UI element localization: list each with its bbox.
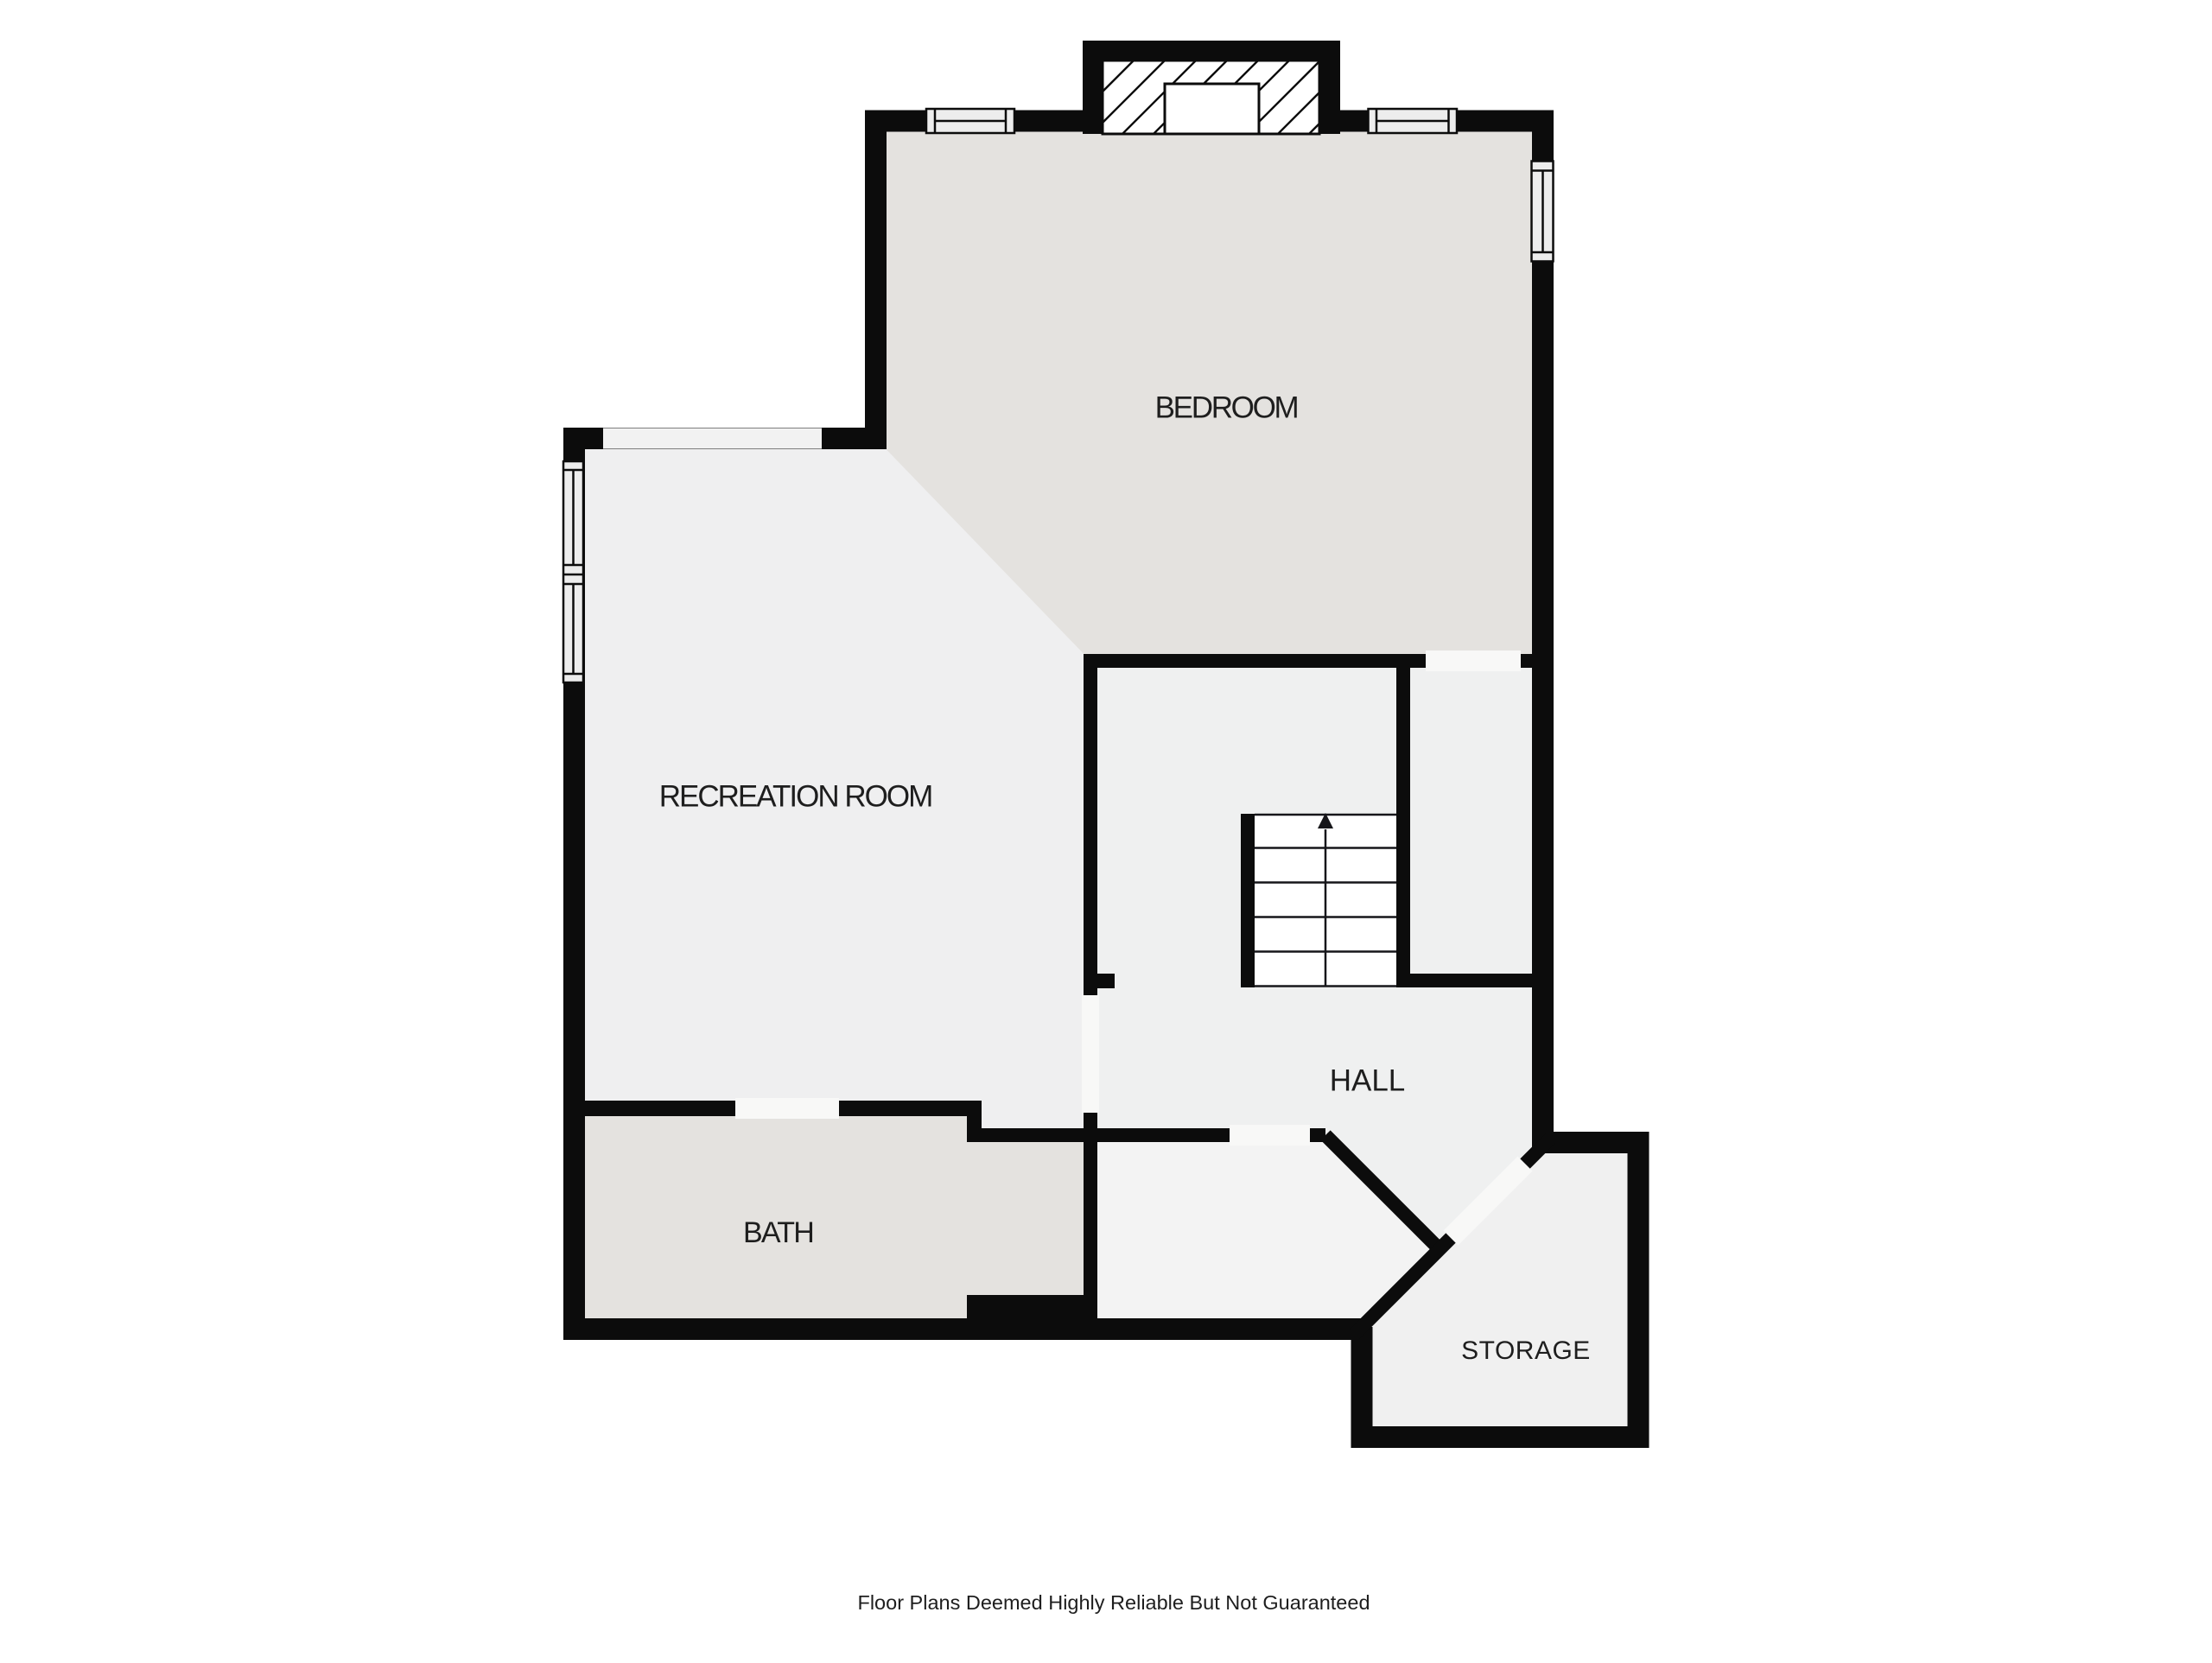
svg-text:Floor Plans Deemed Highly Reli: Floor Plans Deemed Highly Reliable But N… bbox=[857, 1591, 1370, 1614]
svg-text:STORAGE: STORAGE bbox=[1461, 1336, 1591, 1365]
svg-text:RECREATION ROOM: RECREATION ROOM bbox=[659, 780, 931, 814]
svg-text:BEDROOM: BEDROOM bbox=[1155, 391, 1298, 425]
svg-text:HALL: HALL bbox=[1330, 1064, 1406, 1098]
svg-text:BATH: BATH bbox=[743, 1216, 813, 1249]
